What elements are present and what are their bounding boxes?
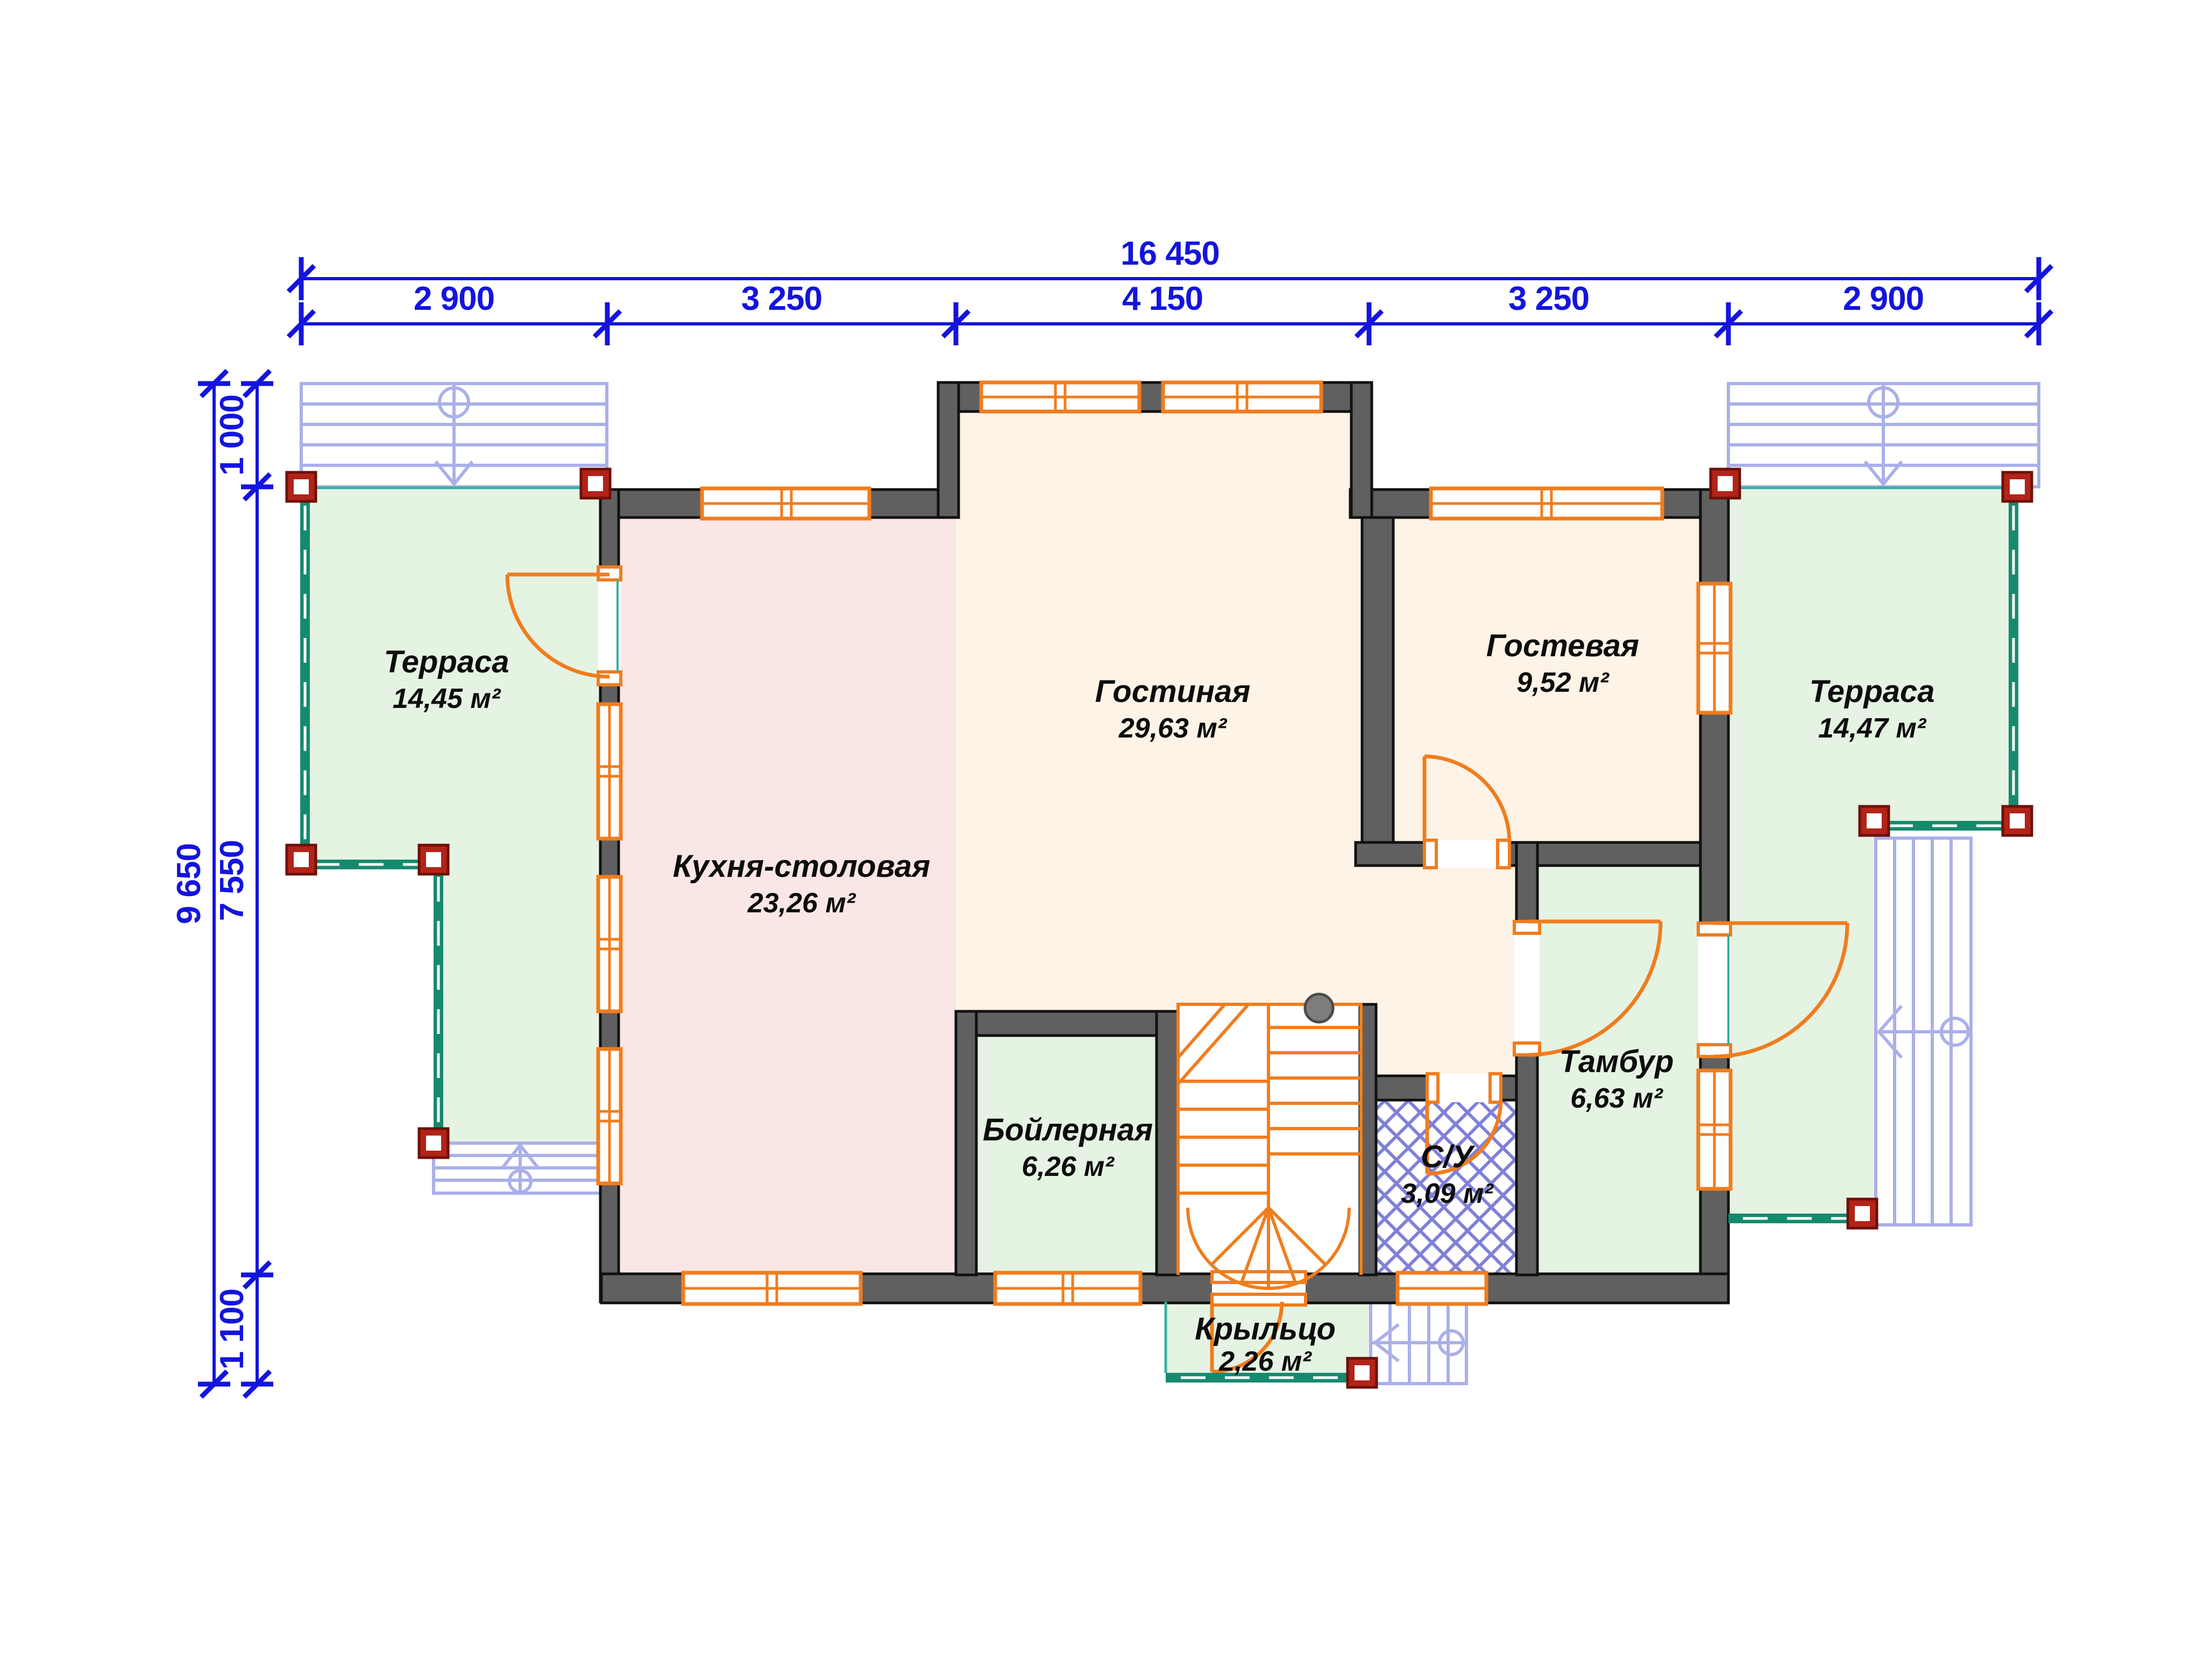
floor-plan-page: 16 450 2 900 3 250 4 150 3 250 2 900 9 6… (0, 0, 2212, 1659)
stairs-top-right (1728, 384, 2039, 487)
room-area-wc: 3,09 м² (1401, 1178, 1494, 1209)
room-area-living: 29,63 м² (1118, 713, 1228, 744)
floor-plan-svg: 16 450 2 900 3 250 4 150 3 250 2 900 9 6… (0, 0, 2212, 1659)
post (1348, 1358, 1377, 1387)
window-wc-bottom (1398, 1273, 1486, 1304)
wall-guest-west (1362, 517, 1393, 866)
room-area-guest: 9,52 м² (1516, 667, 1610, 698)
dim-total-height-label: 9 650 (171, 843, 208, 924)
window-guest-east (1698, 584, 1731, 713)
stairs-top-left (301, 384, 607, 487)
wall-boiler-west (956, 1011, 976, 1275)
room-label-kitchen: Кухня-столовая (673, 849, 931, 884)
room-label-porch: Крыльцо (1195, 1311, 1336, 1346)
stairs-terrace-right (1876, 838, 1971, 1225)
dim-height-seg-3: 1 100 (214, 1289, 251, 1370)
wall-bump-right (1351, 382, 1372, 517)
room-label-boiler: Бойлерная (983, 1112, 1153, 1147)
window-kitchen-bottom (683, 1273, 861, 1304)
dim-width-seg-2: 3 250 (741, 280, 822, 317)
wall-tambour-west (1516, 842, 1537, 1275)
room-fill-living-bump (959, 412, 1350, 519)
post (287, 845, 316, 874)
wall-bump-left (938, 382, 959, 517)
dim-width-seg-5: 2 900 (1843, 280, 1924, 317)
room-fill-terrace-right (1728, 490, 2009, 828)
room-fill-terrace-left-narrow (434, 863, 607, 1143)
wall-boiler-east (1157, 1011, 1178, 1275)
window-west-2 (598, 877, 621, 1011)
stairs-porch (1371, 1302, 1466, 1384)
room-label-tambour: Тамбур (1559, 1044, 1674, 1079)
room-area-kitchen: 23,26 м² (747, 888, 856, 919)
room-area-terrace-left: 14,45 м² (393, 683, 501, 714)
post (2003, 472, 2032, 501)
wall-boiler-north (956, 1011, 1178, 1036)
room-fill-hall (1362, 866, 1537, 1100)
stairs-terrace-left-bottom (434, 1143, 607, 1193)
window-bump-left (981, 382, 1139, 412)
dim-width-seg-1: 2 900 (414, 280, 494, 317)
dim-height-seg-2: 7 550 (214, 840, 251, 921)
window-west-1 (598, 704, 621, 839)
room-label-living: Гостиная (1095, 674, 1251, 709)
room-label-terrace-right: Терраса (1809, 674, 1934, 709)
window-tambour-east (1698, 1070, 1731, 1189)
window-west-3 (598, 1049, 621, 1183)
dim-height-seg-1: 1 000 (214, 395, 251, 476)
post (2003, 806, 2032, 835)
room-label-guest: Гостевая (1486, 628, 1639, 663)
post (581, 469, 610, 498)
window-bump-right (1163, 382, 1321, 412)
room-area-boiler: 6,26 м² (1022, 1151, 1115, 1182)
room-fill-living (956, 517, 1362, 1011)
room-label-terrace-left: Терраса (384, 644, 509, 679)
dim-width-seg-4: 3 250 (1508, 280, 1589, 317)
room-area-tambour: 6,63 м² (1570, 1083, 1663, 1114)
post (1711, 469, 1740, 498)
post (419, 845, 448, 874)
window-guest-top (1431, 488, 1662, 519)
stair-newel (1305, 994, 1333, 1022)
dim-total-width-label: 16 450 (1121, 235, 1220, 272)
room-area-porch: 2,26 м² (1218, 1346, 1312, 1377)
window-boiler-bottom (995, 1273, 1140, 1304)
post (419, 1129, 448, 1158)
post (1860, 806, 1889, 835)
post (287, 472, 316, 501)
post (1848, 1199, 1877, 1228)
dim-width-seg-3: 4 150 (1122, 280, 1203, 317)
room-area-terrace-right: 14,47 м² (1818, 713, 1927, 744)
room-label-wc: С/У (1421, 1139, 1475, 1174)
window-kitchen-top (702, 488, 869, 519)
